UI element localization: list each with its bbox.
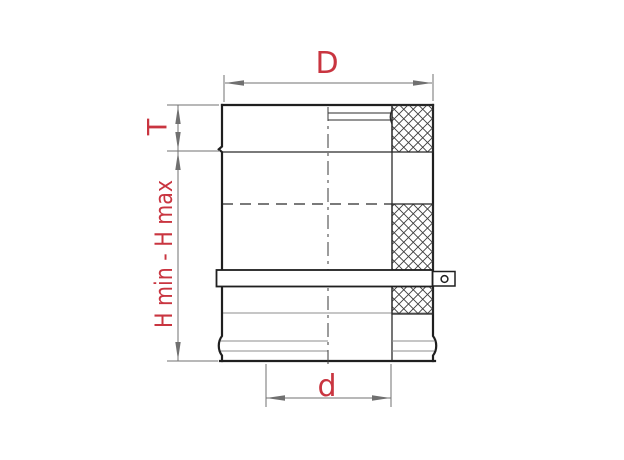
dim-D-arrow-right <box>413 80 432 85</box>
flue-pipe-technical-drawing: D T H min - H max d <box>0 0 624 460</box>
dim-D-label: D <box>315 46 338 81</box>
dimension-H: H min - H max <box>150 152 218 361</box>
drawing-canvas: D T H min - H max d <box>0 0 624 460</box>
dim-H-arrow-down <box>175 342 180 360</box>
locking-band <box>217 270 456 287</box>
insulation-hatch-top <box>392 105 433 152</box>
dimension-d: d <box>266 364 391 407</box>
dim-D-arrow-left <box>225 80 244 85</box>
dim-H-label: H min - H max <box>150 180 178 328</box>
band-tab-hole <box>441 276 448 283</box>
insulation-hatch-lower <box>392 286 433 314</box>
dim-T-arrow-up <box>175 106 180 124</box>
dim-d-arrow-left <box>266 395 285 400</box>
dim-T-arrow-down <box>175 132 180 150</box>
dim-T-label: T <box>143 118 174 136</box>
dim-d-label: d <box>317 369 336 404</box>
band-rect <box>217 270 433 287</box>
dimension-D: D <box>224 46 433 102</box>
insulation-hatch-middle <box>392 204 433 270</box>
dim-d-arrow-right <box>372 395 391 400</box>
pipe-left-edge <box>219 105 222 361</box>
dim-H-arrow-up <box>175 152 180 170</box>
